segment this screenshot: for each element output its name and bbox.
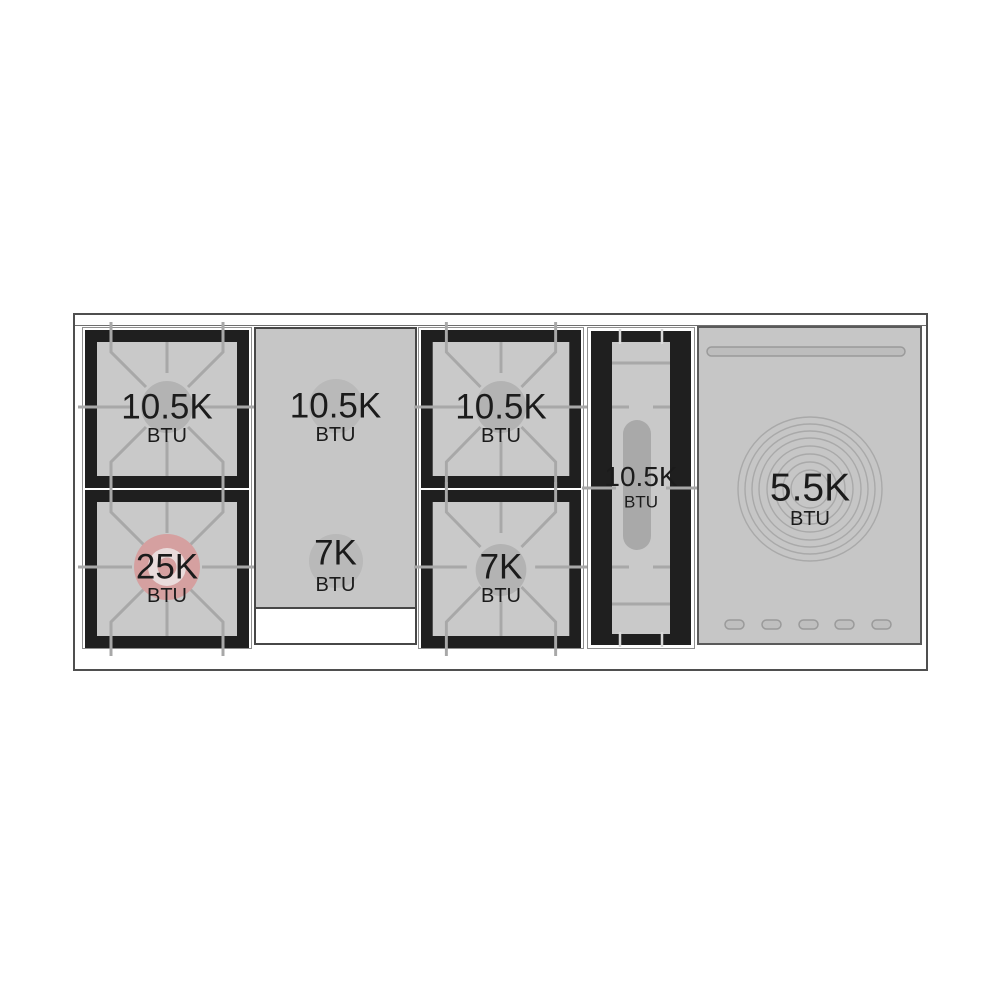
burner-power-label: 7K: [480, 550, 523, 585]
burner-power-label: 10.5K: [121, 390, 212, 425]
griddle-rear-unit-label: BTU: [316, 425, 356, 445]
burner-power-label: 10.5K: [455, 390, 546, 425]
burner-unit-label: BTU: [147, 586, 187, 606]
cooktop-back-trim: [75, 315, 926, 326]
burner-unit-label: BTU: [147, 426, 187, 446]
burner-unit-label: BTU: [481, 426, 521, 446]
simmer-plate-unit-label: BTU: [790, 509, 830, 529]
griddle-front-unit-label: BTU: [316, 575, 356, 595]
griddle-surface: 10.5K BTU 7K BTU: [254, 327, 417, 609]
cooktop-outline: 10.5K BTU 25K BTU 10.5K BTU: [73, 313, 928, 671]
burner-center-rear: 10.5K BTU: [421, 330, 581, 488]
simmer-plate: 5.5K BTU: [697, 326, 922, 645]
simmer-plate-power-label: 5.5K: [770, 469, 850, 508]
cooktop-spec-diagram: 10.5K BTU 25K BTU 10.5K BTU: [0, 0, 1000, 1000]
burner-center-front: 7K BTU: [421, 490, 581, 648]
burner-left-front: 25K BTU: [85, 490, 249, 648]
griddle-front-power-label: 7K: [314, 536, 357, 571]
oval-burner-unit-label: BTU: [624, 494, 658, 511]
burner-power-label: 25K: [136, 550, 198, 585]
griddle-zone: 10.5K BTU 7K BTU: [254, 327, 417, 645]
burner-group-center: 10.5K BTU 7K BTU: [418, 327, 584, 649]
burner-left-rear: 10.5K BTU: [85, 330, 249, 488]
burner-group-left: 10.5K BTU 25K BTU: [82, 327, 252, 649]
burner-unit-label: BTU: [481, 586, 521, 606]
oval-burner-power-label: 10.5K: [604, 463, 677, 491]
griddle-front-tray: [254, 609, 417, 645]
griddle-rear-power-label: 10.5K: [290, 389, 381, 424]
oval-burner-section: 10.5K BTU: [587, 327, 695, 649]
